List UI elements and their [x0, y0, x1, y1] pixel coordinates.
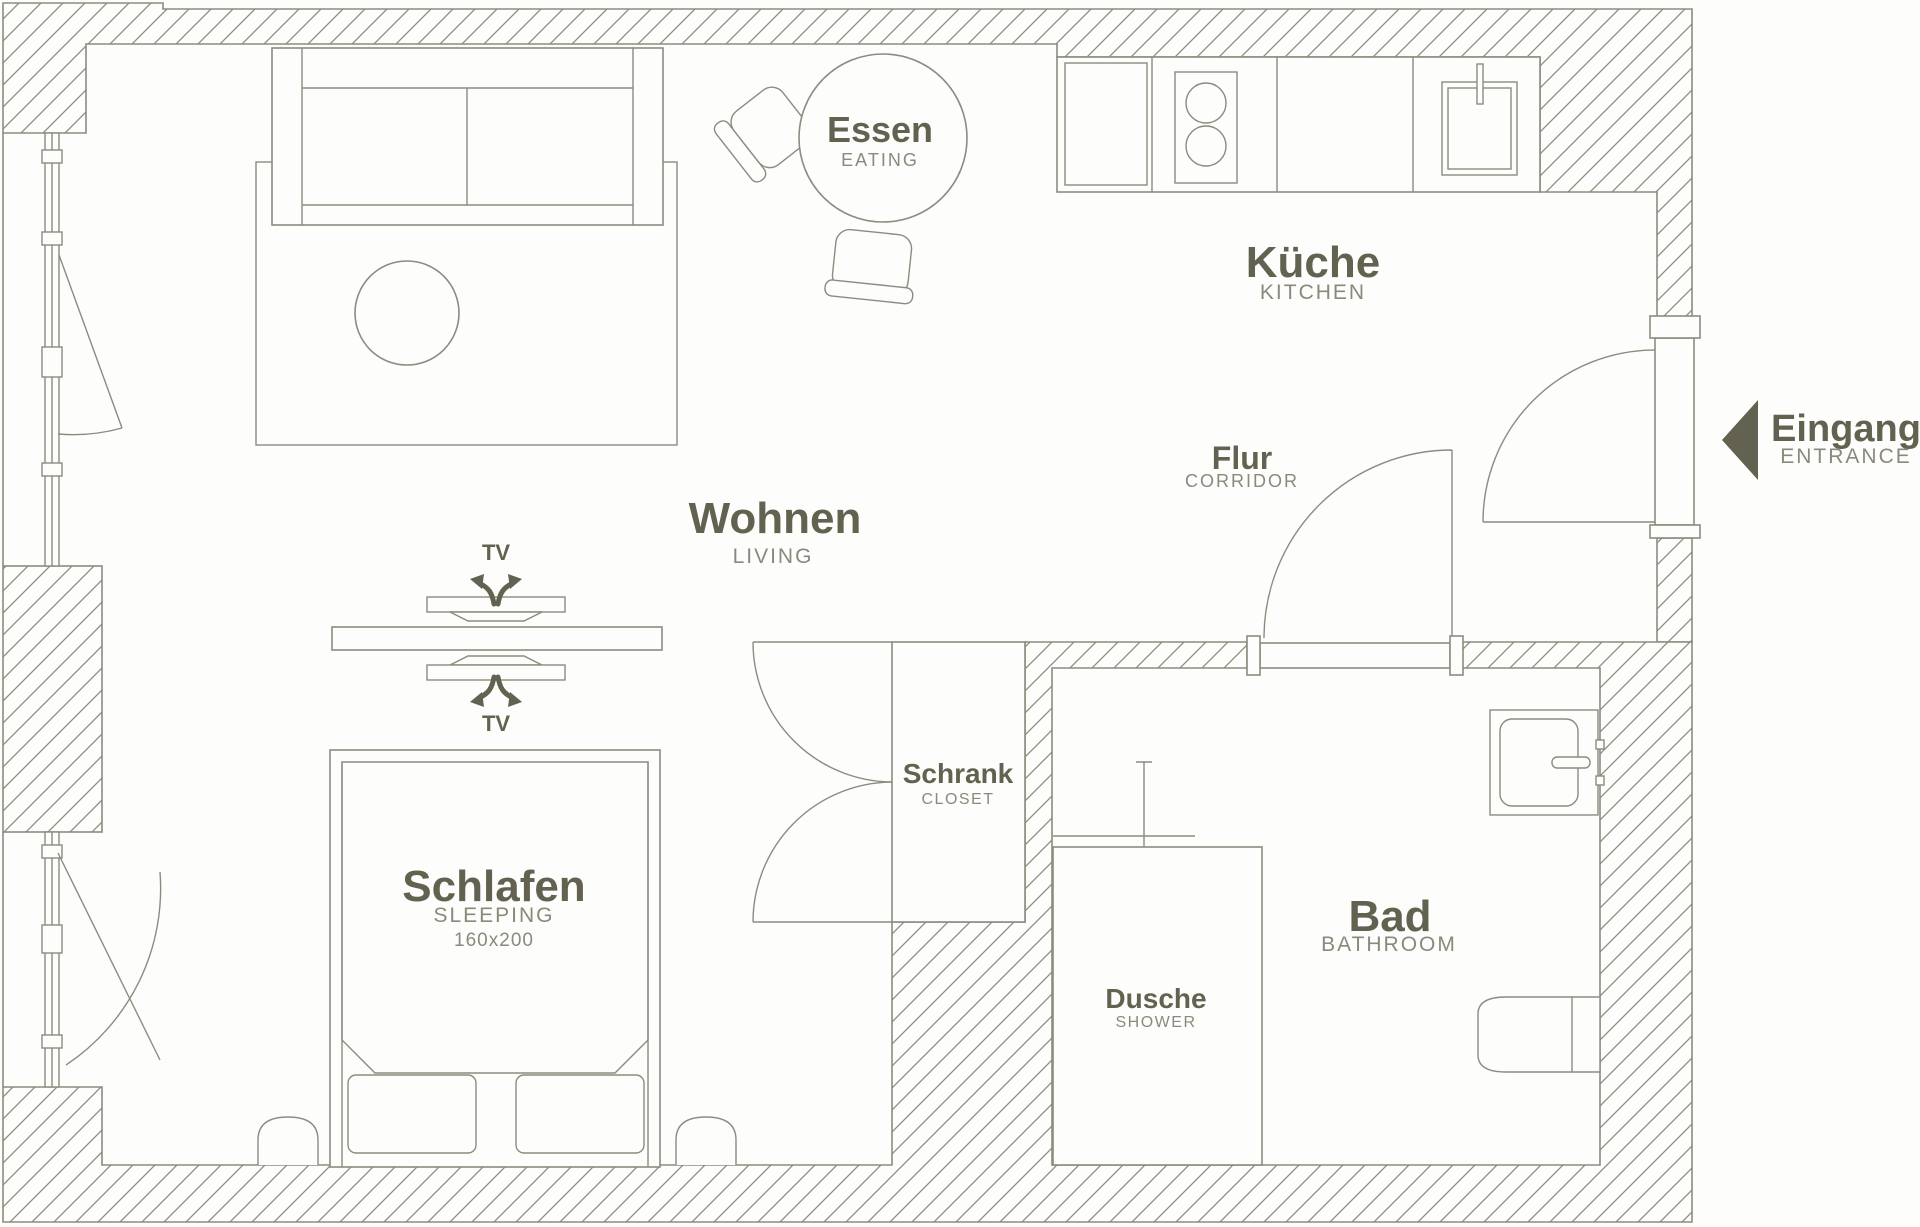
- closet-door-lower: [753, 782, 892, 922]
- dining-area: [712, 54, 967, 304]
- window-upper-casement: [58, 255, 122, 435]
- floor-plan: Wohnen LIVING Essen EATING Küche KITCHEN…: [0, 0, 1920, 1227]
- tv-stand-bottom: [450, 656, 542, 665]
- sink-faucet-icon: [1552, 757, 1590, 768]
- label-kitchen-de: Küche: [1246, 238, 1380, 287]
- label-entrance-de: Eingang: [1771, 408, 1920, 450]
- tv-stand-top: [450, 612, 542, 621]
- wall-right-mid: [1657, 538, 1692, 642]
- label-sleeping-en: SLEEPING: [433, 904, 554, 927]
- wall-left-pier: [3, 566, 102, 832]
- bed: [258, 750, 736, 1167]
- bathroom-sink: [1490, 710, 1604, 815]
- label-tv-bottom: TV: [482, 711, 510, 736]
- label-tv-top: TV: [482, 540, 510, 565]
- label-eating-de: Essen: [827, 109, 933, 150]
- nightstand-left: [258, 1117, 318, 1165]
- label-shower-de: Dusche: [1105, 983, 1206, 1014]
- bathroom-door-jamb-right: [1450, 636, 1463, 675]
- bed-pillow-right: [516, 1075, 644, 1153]
- shower-fixture-icon: [1053, 762, 1195, 847]
- window-lower: [42, 832, 161, 1087]
- label-living-de: Wohnen: [689, 494, 862, 543]
- wall-main: [3, 642, 1692, 1222]
- label-closet-de: Schrank: [903, 758, 1014, 789]
- coffee-table: [355, 261, 459, 365]
- entrance-door-jamb-bottom: [1650, 525, 1700, 538]
- entrance-door-opening: [1655, 338, 1694, 525]
- nightstand-right: [676, 1117, 736, 1165]
- entrance-door-swing: [1483, 350, 1655, 522]
- tv-unit: [332, 574, 662, 707]
- bed-pillow-left: [348, 1075, 476, 1153]
- label-corridor-en: CORRIDOR: [1185, 471, 1299, 491]
- closet-door-upper: [753, 642, 892, 782]
- window-lower-casement: [58, 853, 161, 1065]
- dining-chair-2: [824, 228, 919, 305]
- window-upper: [42, 133, 122, 566]
- living-area: [256, 48, 677, 445]
- kitchen-faucet-icon: [1477, 64, 1483, 104]
- entrance-door-jamb-top: [1650, 316, 1700, 338]
- label-kitchen-en: KITCHEN: [1260, 281, 1366, 304]
- sideboard: [332, 627, 662, 650]
- cooktop: [1175, 72, 1237, 183]
- label-living-en: LIVING: [733, 545, 814, 568]
- shower-enclosure: [1053, 762, 1262, 1165]
- label-eating-en: EATING: [841, 150, 919, 170]
- label-entrance-en: ENTRANCE: [1780, 445, 1912, 468]
- kitchen-cabinet: [1065, 63, 1147, 185]
- floor-plan-svg: Wohnen LIVING Essen EATING Küche KITCHEN…: [0, 0, 1920, 1227]
- doors: [1247, 316, 1700, 675]
- toilet: [1478, 997, 1600, 1072]
- bathroom-door-jamb-left: [1247, 636, 1260, 675]
- kitchen-counter: [1057, 57, 1540, 192]
- label-bathroom-en: BATHROOM: [1321, 933, 1457, 956]
- tv-rotate-arrows-bottom: [470, 677, 522, 707]
- entrance-arrow-icon: [1722, 400, 1758, 480]
- label-closet-en: CLOSET: [921, 791, 994, 808]
- sofa: [272, 48, 663, 225]
- bathroom-door-opening: [1260, 643, 1450, 668]
- label-shower-en: SHOWER: [1116, 1014, 1197, 1031]
- label-bed-size: 160x200: [454, 930, 534, 951]
